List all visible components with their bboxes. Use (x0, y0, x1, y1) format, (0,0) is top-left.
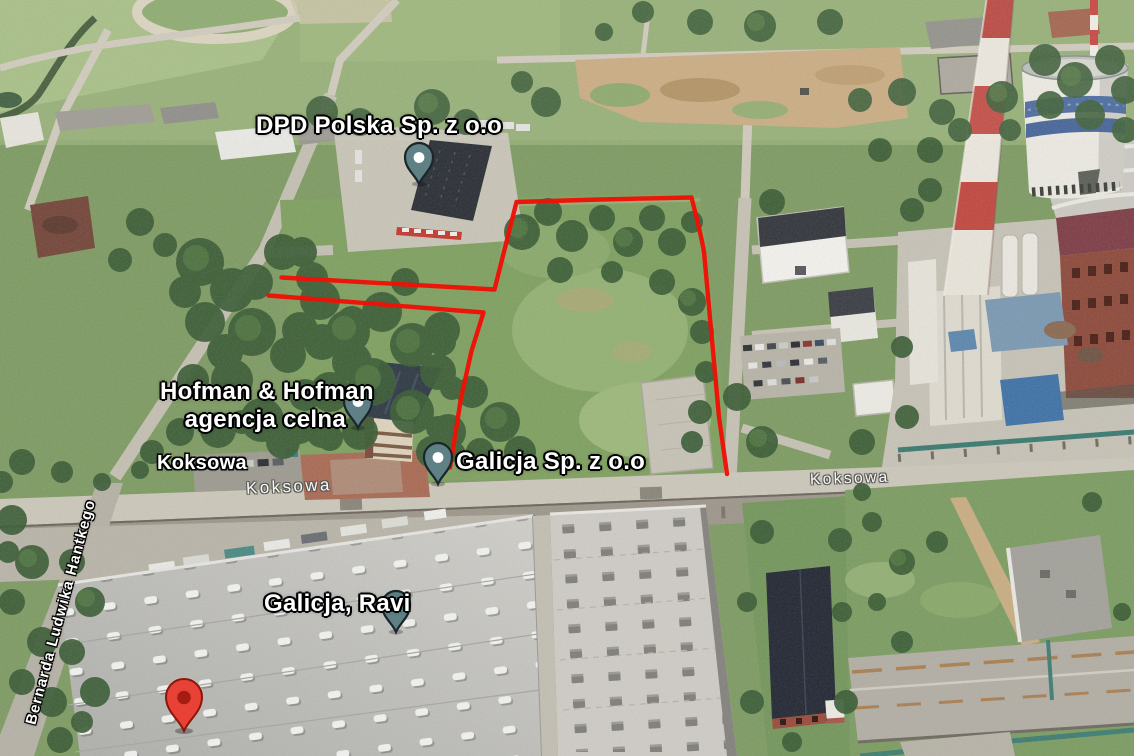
label-koksowa-on-road-left: Koksowa (246, 475, 333, 498)
pin-galicja[interactable] (424, 443, 452, 484)
pin-dpd-polska[interactable] (405, 143, 433, 184)
label-dpd-polska[interactable]: DPD Polska Sp. z o.o (256, 112, 502, 140)
map-pins (166, 143, 452, 734)
map-canvas[interactable]: DPD Polska Sp. z o.o Hofman & Hofman age… (0, 0, 1134, 756)
label-koksowa-on-road-right: Koksowa (810, 469, 890, 490)
plot-boundary-line-main (282, 198, 728, 475)
label-hofman-line2: agencja celna (160, 406, 346, 434)
pin-dropped-red[interactable] (166, 679, 202, 731)
label-koksowa-street: Koksowa (157, 452, 247, 475)
label-hofman-line1: Hofman & Hofman (160, 378, 346, 406)
label-galicja[interactable]: Galicja Sp. z o.o (456, 448, 645, 476)
label-hofman[interactable]: Hofman & Hofman agencja celna (160, 378, 346, 433)
label-galicja-ravi[interactable]: Galicja, Ravi (264, 590, 411, 618)
